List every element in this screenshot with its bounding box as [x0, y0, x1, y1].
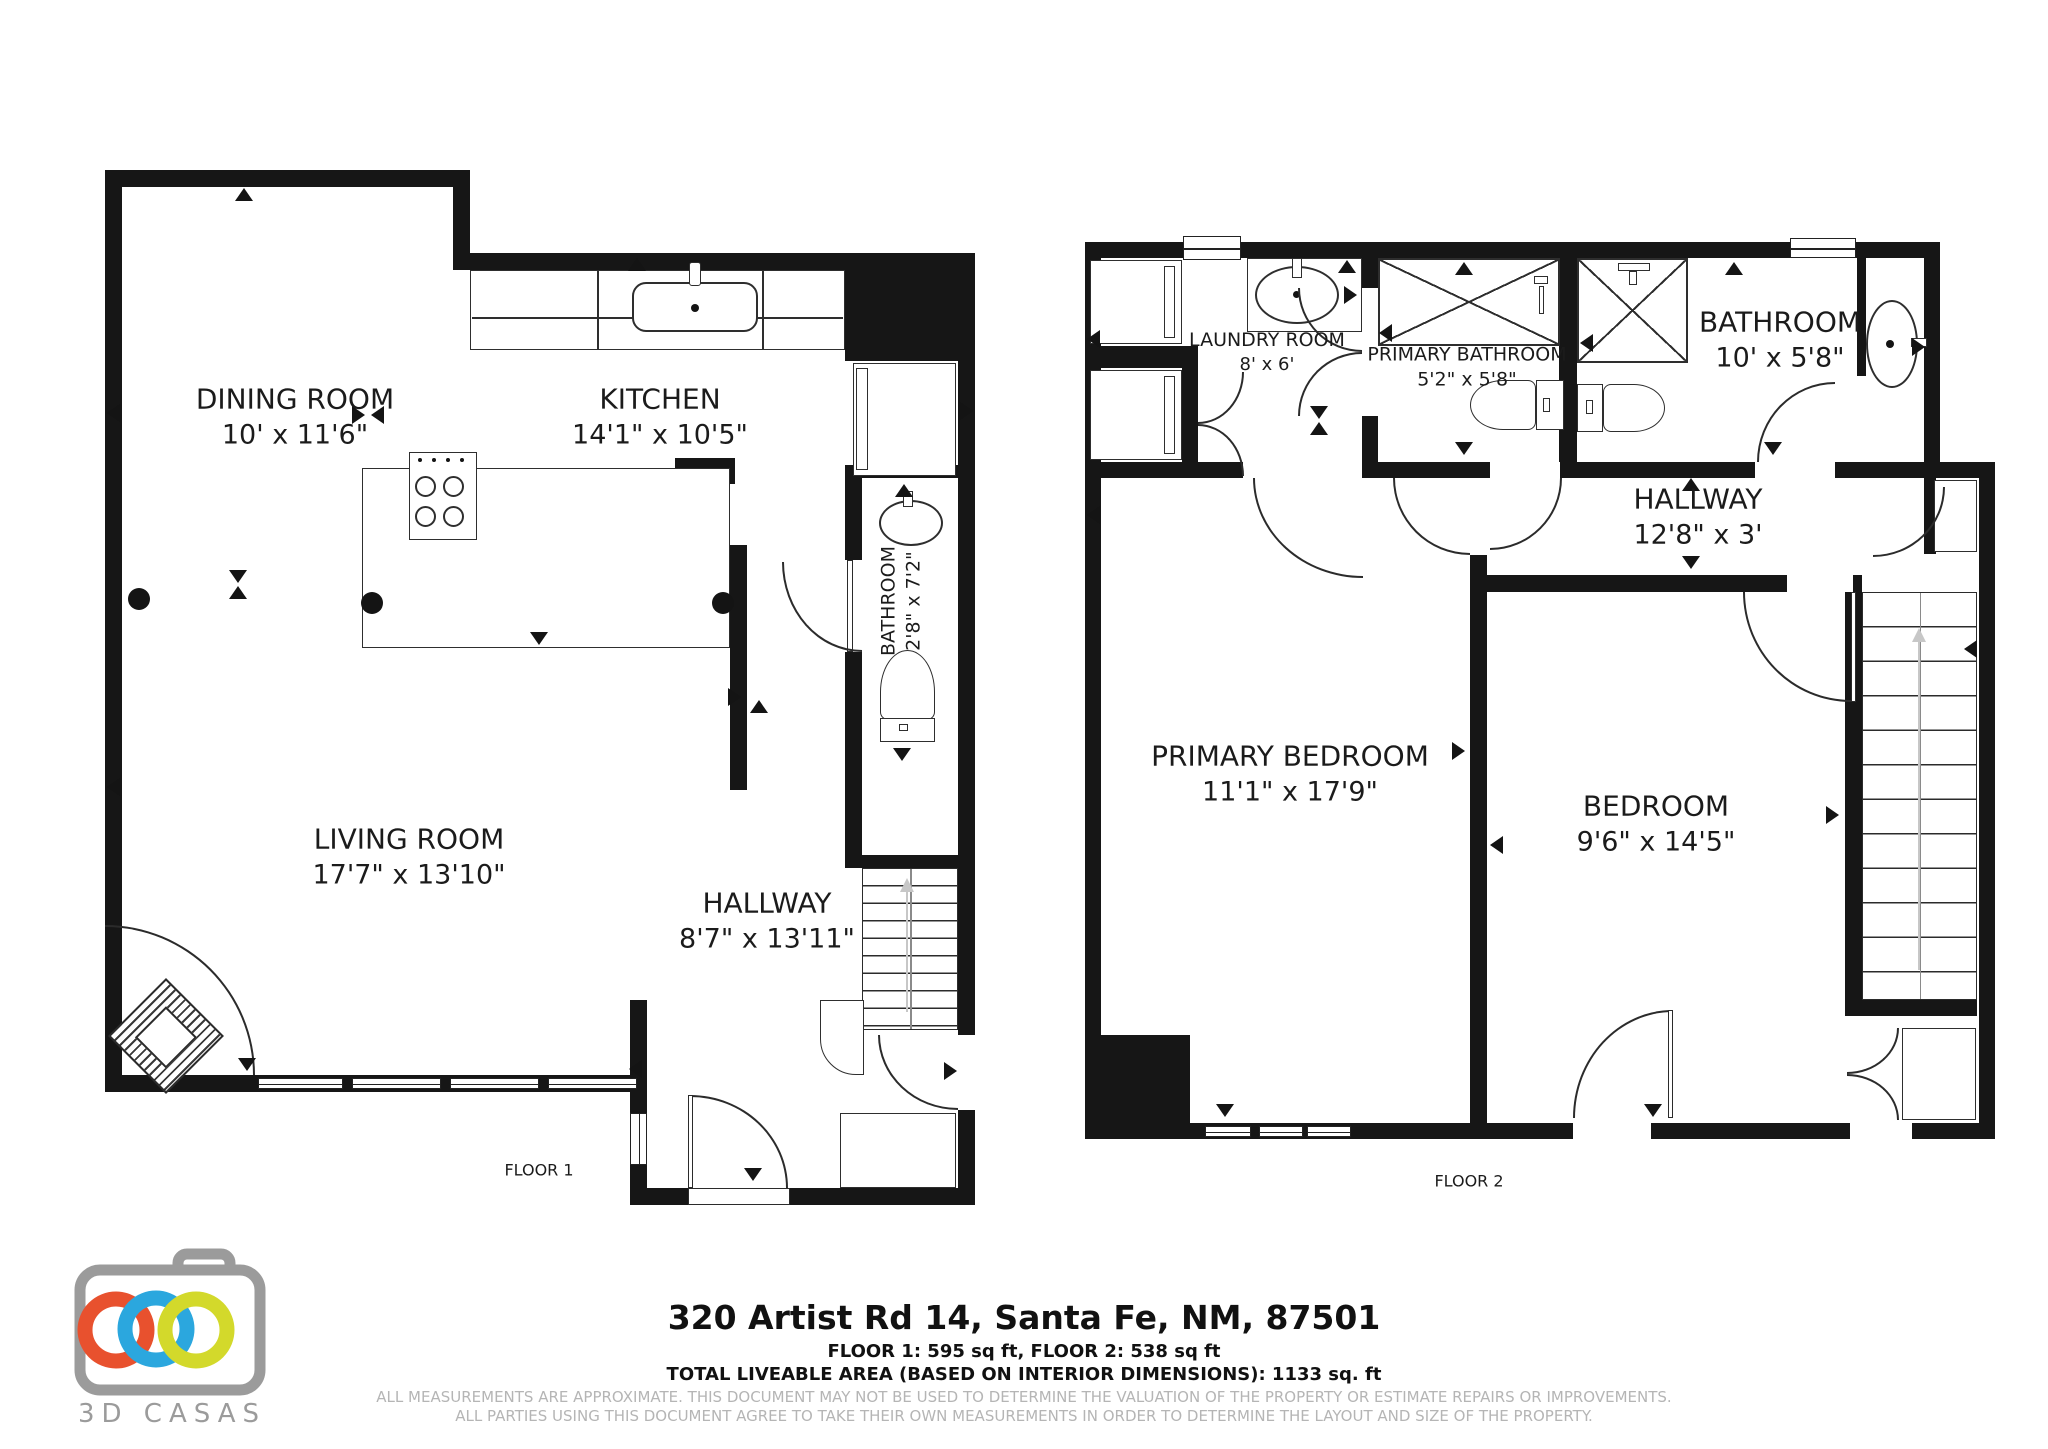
- closet-bifold-arc: [1847, 1028, 1899, 1074]
- window: [258, 1078, 343, 1089]
- sink-drain-icon: [691, 304, 699, 312]
- door-leaf: [688, 1095, 693, 1188]
- dimension-marker-icon: [1644, 1104, 1662, 1117]
- dryer-door: [1164, 376, 1175, 454]
- room-label-laundry: LAUNDRY ROOM 8' x 6': [1189, 328, 1345, 376]
- wall: [1845, 1000, 1977, 1016]
- dimension-marker-icon: [944, 1062, 957, 1080]
- sink-drain-icon: [1886, 340, 1894, 348]
- floor-areas-line: FLOOR 1: 595 sq ft, FLOOR 2: 538 sq ft: [0, 1341, 2048, 1362]
- support-post: [128, 588, 150, 610]
- dimension-marker-icon: [893, 748, 911, 761]
- dimension-marker-icon: [1826, 806, 1839, 824]
- room-dims: 2'8" x 7'2": [901, 546, 926, 656]
- window: [352, 1078, 441, 1089]
- window: [1307, 1126, 1351, 1137]
- closet: [840, 1113, 956, 1188]
- dimension-marker-icon: [1344, 286, 1357, 304]
- total-area-line: TOTAL LIVEABLE AREA (BASED ON INTERIOR D…: [0, 1364, 2048, 1385]
- wall: [1470, 555, 1487, 1123]
- shower-head-icon: [1629, 271, 1637, 285]
- wall: [105, 170, 470, 187]
- counter-divider: [597, 270, 599, 350]
- dimension-marker-icon: [1310, 422, 1328, 435]
- closet-bifold-arc: [1198, 424, 1244, 476]
- closet-door: [856, 368, 868, 470]
- counter-divider: [762, 270, 764, 350]
- dimension-marker-icon: [1455, 442, 1473, 455]
- washer-door: [1164, 266, 1175, 338]
- stairs-up-arrow-icon: [906, 890, 908, 1012]
- dimension-marker-icon: [107, 404, 120, 422]
- room-dims: 11'1" x 17'9": [1151, 775, 1429, 810]
- door-opening: [1573, 1123, 1651, 1139]
- stove-knob-icon: [446, 458, 450, 462]
- dimension-marker-icon: [1338, 260, 1356, 273]
- address-line: 320 Artist Rd 14, Santa Fe, NM, 87501: [0, 1298, 2048, 1337]
- room-name: LIVING ROOM: [312, 821, 505, 857]
- stair-flare: [820, 1000, 864, 1075]
- dimension-marker-icon: [895, 484, 913, 497]
- disclaimer-line: ALL MEASUREMENTS ARE APPROXIMATE. THIS D…: [0, 1388, 2048, 1406]
- dimension-marker-icon: [728, 688, 741, 706]
- staircase: [862, 868, 958, 1030]
- window: [450, 1078, 539, 1089]
- dimension-marker-icon: [1455, 262, 1473, 275]
- wall: [1924, 242, 1940, 478]
- room-label-bathroom-f2: BATHROOM 10' x 5'8": [1699, 304, 1861, 375]
- room-label-dining: DINING ROOM 10' x 11'6": [196, 381, 394, 452]
- wall: [845, 253, 975, 361]
- dimension-marker-icon: [1580, 334, 1593, 352]
- disclaimer-line: ALL PARTIES USING THIS DOCUMENT AGREE TO…: [0, 1407, 2048, 1425]
- dimension-marker-icon: [750, 700, 768, 713]
- dimension-marker-icon: [229, 586, 247, 599]
- dimension-marker-icon: [1087, 330, 1100, 348]
- door-swing-arc: [1393, 478, 1470, 555]
- stove-knob-icon: [418, 458, 422, 462]
- dimension-marker-icon: [1682, 556, 1700, 569]
- dimension-marker-icon: [530, 632, 548, 645]
- flush-button-icon: [899, 724, 908, 731]
- room-dims: 12'8" x 3': [1633, 518, 1762, 553]
- window: [1183, 236, 1241, 260]
- door-opening: [1490, 462, 1560, 478]
- window: [1790, 238, 1856, 258]
- dimension-marker-icon: [1087, 506, 1100, 524]
- dimension-marker-icon: [744, 1168, 762, 1181]
- window: [630, 1113, 647, 1165]
- closet-bifold-arc: [1198, 372, 1244, 424]
- dimension-marker-icon: [235, 188, 253, 201]
- toilet-bowl: [1603, 384, 1665, 432]
- room-dims: 14'1" x 10'5": [572, 418, 748, 453]
- window: [1259, 1126, 1303, 1137]
- room-dims: 5'2" x 5'8": [1367, 367, 1566, 392]
- flush-button-icon: [1586, 400, 1593, 414]
- wall: [845, 465, 862, 868]
- flush-button-icon: [1543, 398, 1550, 412]
- dimension-marker-icon: [1964, 640, 1977, 658]
- room-name: HALLWAY: [679, 885, 855, 921]
- logo-camera-icon: 3D CASAS: [68, 1248, 283, 1430]
- door-swing-arc: [690, 1095, 788, 1188]
- door-opening: [958, 1035, 975, 1110]
- dimension-marker-icon: [1490, 836, 1503, 854]
- dimension-marker-icon: [1216, 1104, 1234, 1117]
- room-dims: 10' x 11'6": [196, 418, 394, 453]
- dimension-marker-icon: [229, 570, 247, 583]
- burner-icon: [415, 506, 436, 527]
- dimension-marker-icon: [1452, 742, 1465, 760]
- room-dims: 17'7" x 13'10": [312, 858, 505, 893]
- room-label-kitchen: KITCHEN 14'1" x 10'5": [572, 381, 748, 452]
- faucet-icon: [1292, 258, 1302, 278]
- door-leaf: [1851, 592, 1856, 702]
- door-opening: [1850, 1123, 1912, 1139]
- window: [1205, 1126, 1251, 1137]
- support-post: [712, 592, 734, 614]
- toilet-bowl: [880, 650, 935, 720]
- entry-threshold: [688, 1188, 790, 1205]
- faucet-icon: [689, 262, 701, 286]
- closet-bifold-arc: [1847, 1074, 1899, 1120]
- wall: [1085, 1035, 1190, 1139]
- support-post: [361, 592, 383, 614]
- closet: [853, 363, 956, 476]
- room-dims: 8' x 6': [1189, 353, 1345, 376]
- room-name: BEDROOM: [1577, 788, 1736, 824]
- room-label-bedroom: BEDROOM 9'6" x 14'5": [1577, 788, 1736, 859]
- room-name: KITCHEN: [572, 381, 748, 417]
- room-name: HALLWAY: [1633, 481, 1762, 517]
- room-label-bathroom-f1: BATHROOM 2'8" x 7'2": [876, 546, 925, 656]
- dimension-marker-icon: [1912, 338, 1925, 356]
- wall: [630, 1000, 647, 1205]
- shower-head-icon: [1618, 263, 1650, 271]
- floor-plan-document: DINING ROOM 10' x 11'6" KITCHEN 14'1" x …: [0, 0, 2048, 1449]
- door-leaf: [1668, 1010, 1673, 1118]
- shower-head-icon: [1534, 276, 1548, 284]
- room-label-hallway-f2: HALLWAY 12'8" x 3': [1633, 481, 1762, 552]
- wall: [1979, 462, 1995, 1139]
- room-dims: 9'6" x 14'5": [1577, 825, 1736, 860]
- burner-icon: [415, 476, 436, 497]
- dimension-marker-icon: [1764, 442, 1782, 455]
- stove-knob-icon: [460, 458, 464, 462]
- dimension-marker-icon: [1310, 406, 1328, 419]
- shower-head-icon: [1539, 286, 1544, 314]
- door-swing-arc: [1743, 592, 1851, 702]
- window: [548, 1078, 637, 1089]
- room-name: DINING ROOM: [196, 381, 394, 417]
- door-opening: [1787, 575, 1853, 592]
- room-name: PRIMARY BEDROOM: [1151, 738, 1429, 774]
- room-dims: 10' x 5'8": [1699, 341, 1861, 376]
- closet: [1902, 1028, 1976, 1120]
- room-name: BATHROOM: [1699, 304, 1861, 340]
- dimension-marker-icon: [107, 778, 120, 796]
- room-label-primary-bedroom: PRIMARY BEDROOM 11'1" x 17'9": [1151, 738, 1429, 809]
- dimension-marker-icon: [1379, 324, 1392, 342]
- burner-icon: [443, 506, 464, 527]
- wall: [845, 855, 958, 868]
- door-opening: [1755, 462, 1835, 478]
- floor-label-2: FLOOR 2: [1434, 1172, 1503, 1193]
- door-swing-arc: [1490, 478, 1562, 550]
- dimension-marker-icon: [628, 258, 646, 271]
- room-label-living: LIVING ROOM 17'7" x 13'10": [312, 821, 505, 892]
- dimension-marker-icon: [1725, 262, 1743, 275]
- room-name: LAUNDRY ROOM: [1189, 328, 1345, 353]
- door-swing-arc: [1253, 478, 1363, 578]
- floor-label-1: FLOOR 1: [504, 1161, 573, 1182]
- room-dims: 8'7" x 13'11": [679, 922, 855, 957]
- room-label-hallway-f1: HALLWAY 8'7" x 13'11": [679, 885, 855, 956]
- dimension-marker-icon: [629, 1060, 642, 1078]
- stove: [409, 452, 477, 540]
- dimension-marker-icon: [238, 1058, 256, 1071]
- room-name: BATHROOM: [876, 546, 901, 656]
- brand-text: 3D CASAS: [78, 1399, 266, 1429]
- hearth-arc: [105, 925, 255, 1075]
- wall: [730, 545, 747, 790]
- burner-icon: [443, 476, 464, 497]
- stove-knob-icon: [432, 458, 436, 462]
- door-swing-arc: [782, 562, 862, 652]
- wall: [630, 1188, 975, 1205]
- room-name: PRIMARY BATHROOM: [1367, 342, 1566, 367]
- door-swing-arc: [1573, 1010, 1673, 1118]
- stairs-up-arrow-icon: [1918, 640, 1920, 970]
- dimension-marker-icon: [960, 402, 973, 420]
- room-label-primary-bathroom: PRIMARY BATHROOM 5'2" x 5'8": [1367, 342, 1566, 391]
